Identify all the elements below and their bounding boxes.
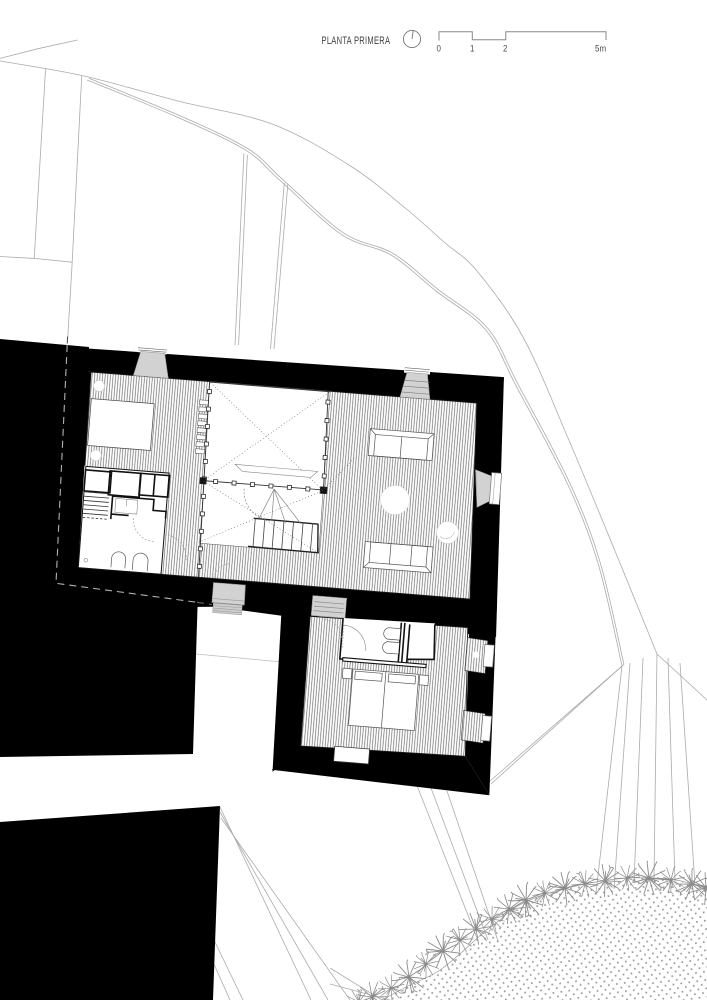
- svg-text:1: 1: [470, 43, 475, 54]
- svg-text:0: 0: [437, 43, 442, 54]
- svg-text:PLANTA PRIMERA: PLANTA PRIMERA: [322, 35, 391, 47]
- svg-text:5m: 5m: [595, 43, 606, 54]
- svg-text:2: 2: [503, 43, 508, 54]
